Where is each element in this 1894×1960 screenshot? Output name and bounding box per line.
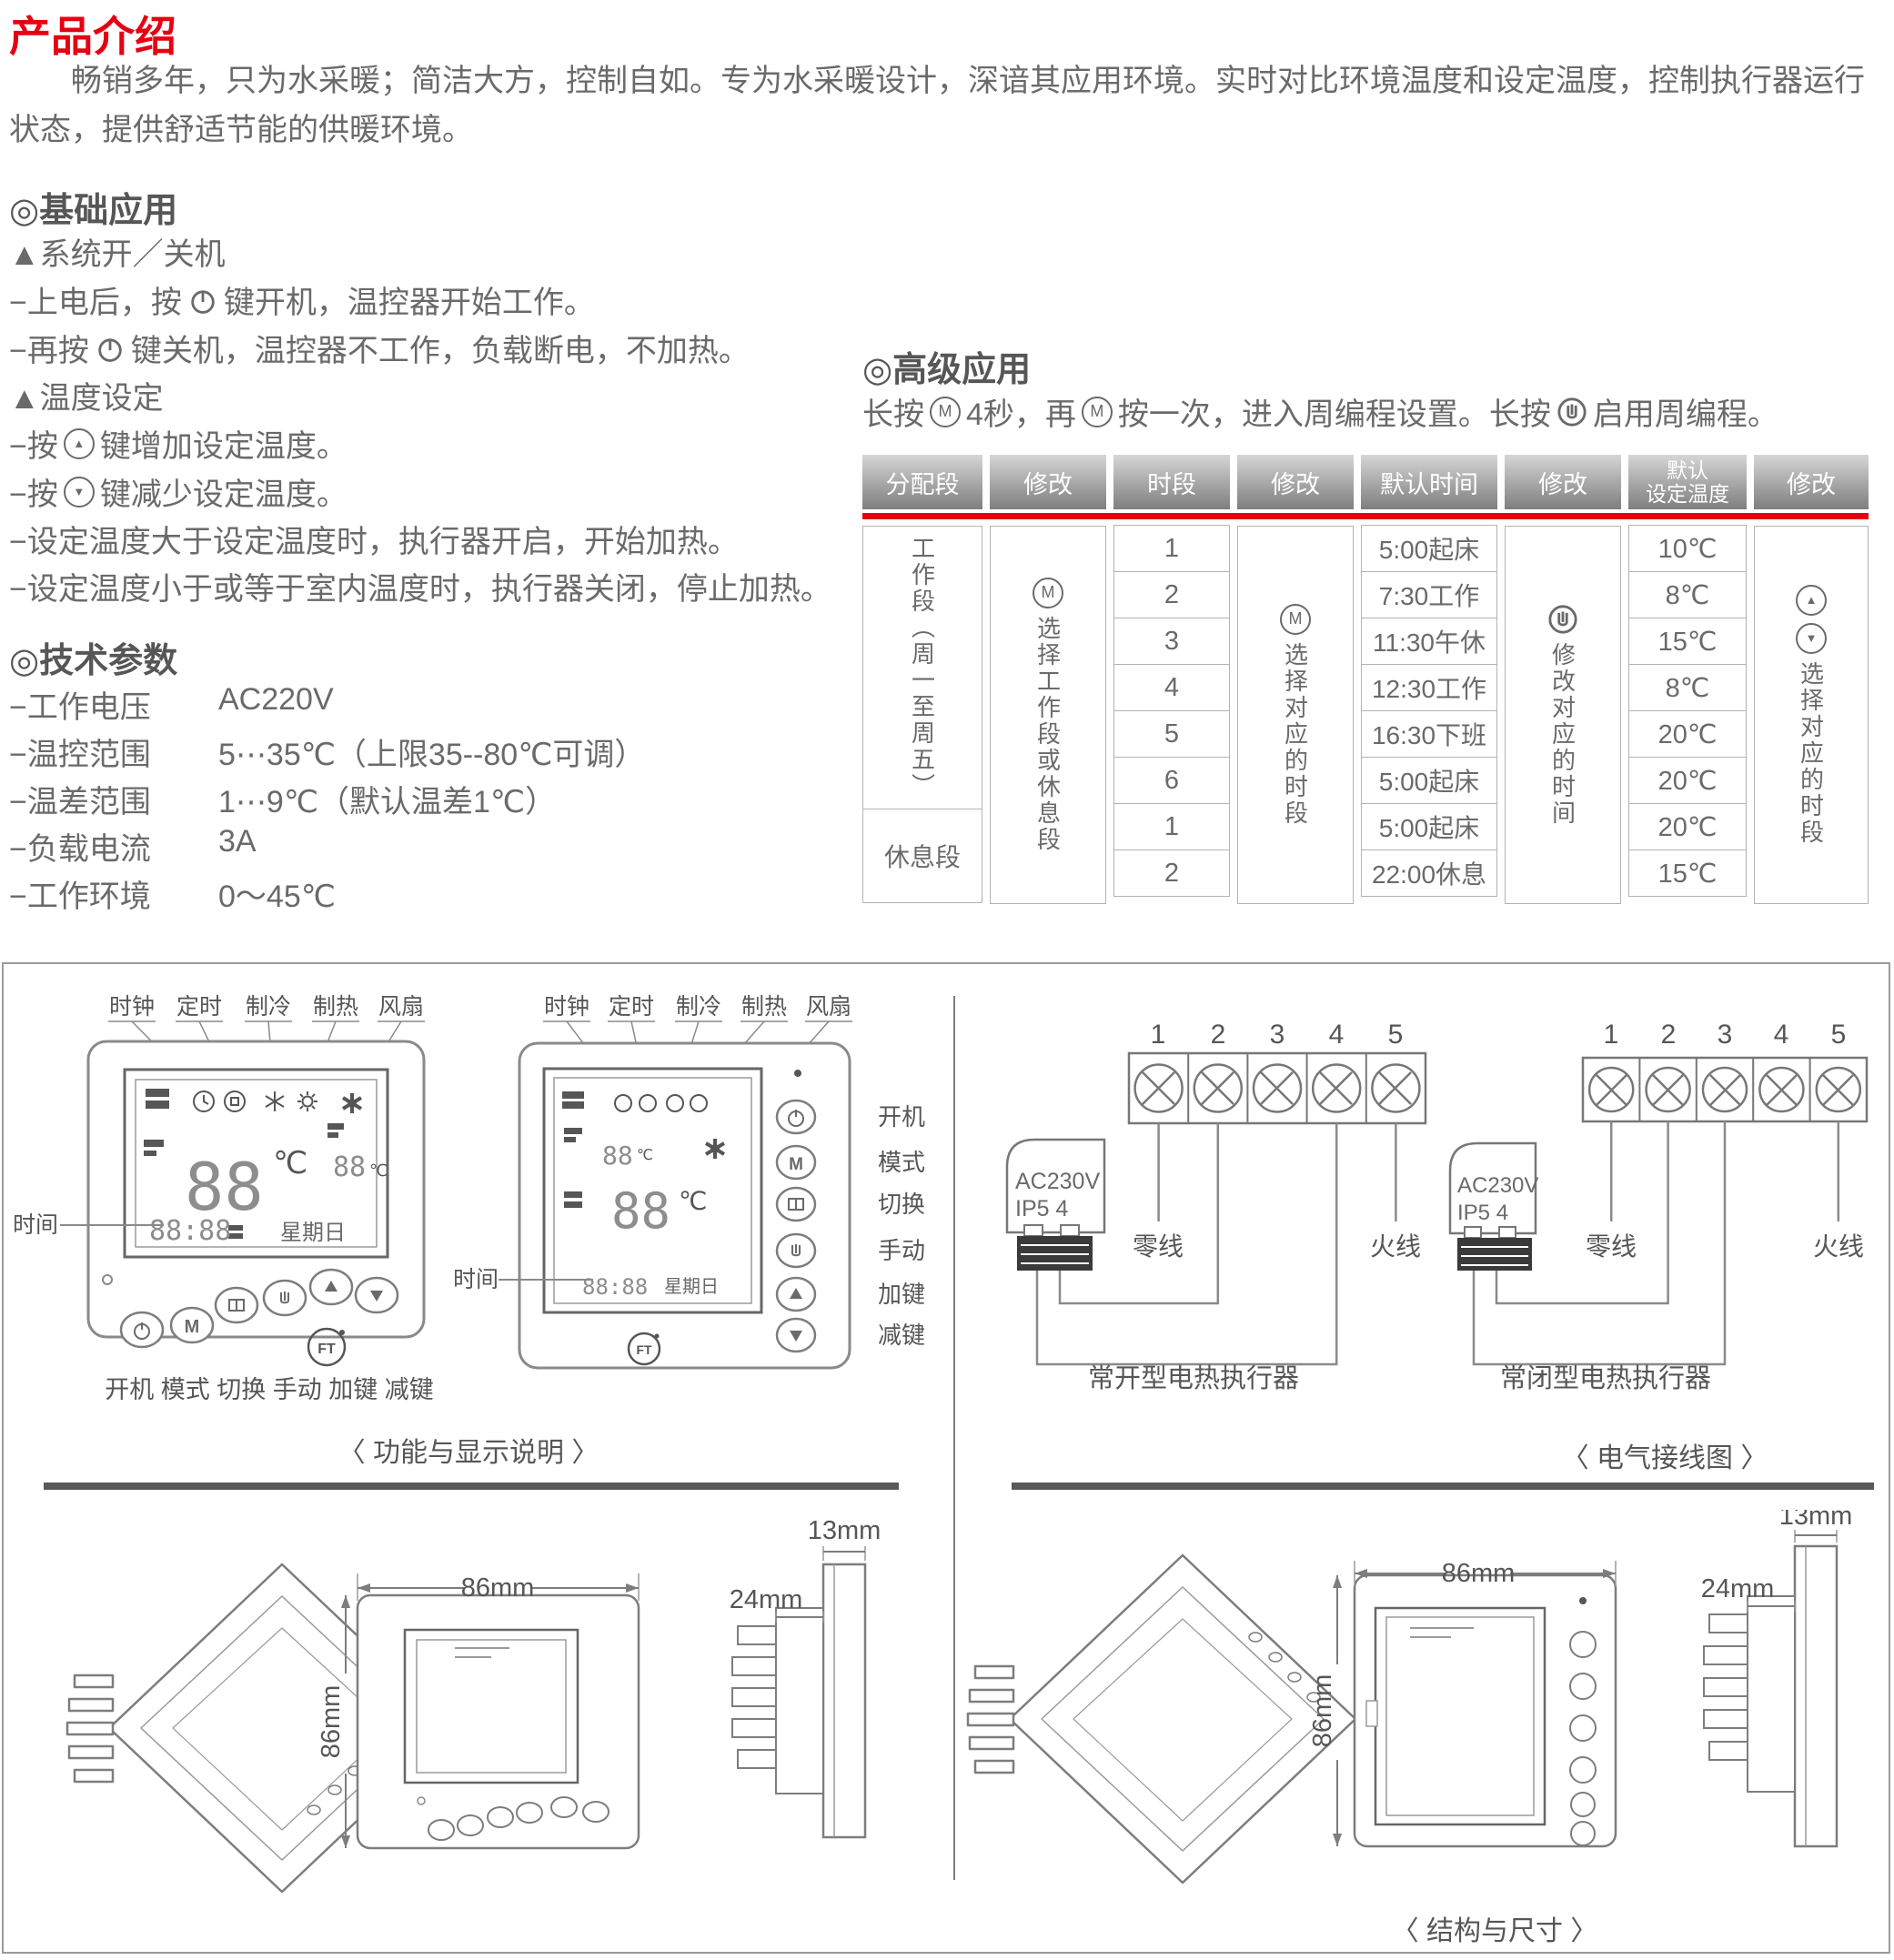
terminal-number: 3 <box>1718 1020 1733 1050</box>
height-label: 86mm <box>317 1685 346 1759</box>
m-key-icon: M <box>1033 578 1063 608</box>
perspective-view <box>968 1555 1355 1883</box>
display-label-cool: 制冷 <box>246 994 291 1020</box>
basic-line-3-post: 键增加设定温度。 <box>100 421 348 466</box>
advanced-intro: 长按 M 4秒，再 M 按一次，进入周编程设置。长按 启用周编程。 <box>862 389 1778 434</box>
down-key-icon <box>64 477 95 508</box>
side-label-manual: 手动 <box>878 1237 925 1264</box>
terminal-number: 5 <box>1388 1020 1404 1050</box>
period-cell: 6 <box>1113 757 1230 804</box>
th-modify-1: 修改 <box>990 455 1106 509</box>
led-indicator <box>794 1070 801 1077</box>
side-label-mode: 模式 <box>878 1149 925 1176</box>
display-label-timer: 定时 <box>176 994 222 1020</box>
front-view <box>1355 1575 1616 1846</box>
lcd-temp-unit: ℃ <box>273 1146 307 1181</box>
temp-cell: 10℃ <box>1628 525 1747 572</box>
time-cell: 22:00休息 <box>1361 849 1497 897</box>
manual-page: 产品介绍 畅销多年，只为水采暖；简洁大方，控制自如。专为水采暖设计，深谙其应用环… <box>0 0 1894 1960</box>
tech-label-0: −工作电压 <box>9 682 151 727</box>
thermostat-front-diagram-2: 时钟 定时 制冷 制热 风扇 88 ℃ 88 ℃ 88:88 星期日 <box>446 987 955 1423</box>
side-label-switch: 切换 <box>878 1191 925 1218</box>
m-button-label: M <box>789 1155 803 1174</box>
temp-cell: 15℃ <box>1628 849 1747 897</box>
cell-select-period: M 选择对应的时段 <box>1237 526 1354 904</box>
th-modify-2: 修改 <box>1237 455 1354 509</box>
tech-label-1: −温控范围 <box>9 729 151 774</box>
depth-label: 24mm <box>730 1585 803 1614</box>
ft-logo-text: FT <box>636 1342 652 1357</box>
display-label-heat: 制热 <box>313 994 358 1020</box>
lcd-week: 星期日 <box>280 1221 346 1245</box>
lcd-time-digits: 88:88 <box>149 1215 231 1247</box>
time-cell: 5:00起床 <box>1361 525 1497 572</box>
up-key-icon <box>64 428 95 459</box>
period-cell: 2 <box>1113 571 1230 618</box>
period-cell: 2 <box>1113 849 1230 897</box>
tech-value-1: 5⋯35℃（上限35--80℃可调） <box>218 729 645 774</box>
actuator-voltage: AC230V <box>1457 1173 1538 1198</box>
tech-label-4: −工作环境 <box>9 871 151 916</box>
panel-label: 13mm <box>808 1516 882 1545</box>
basic-sub-power: ▲系统开／关机 <box>9 229 226 274</box>
hand-key-icon <box>1547 604 1578 635</box>
ft-logo-dot <box>655 1334 660 1339</box>
period-cell: 1 <box>1113 525 1230 572</box>
power-icon <box>95 333 126 364</box>
lcd-temp-digits: 88 <box>611 1182 670 1240</box>
display-label-clock: 时钟 <box>109 994 155 1020</box>
live-label: 火线 <box>1813 1232 1864 1261</box>
basic-line-1: −上电后，按 键开机，温控器开始工作。 <box>9 277 595 322</box>
temp-cell: 15℃ <box>1628 618 1747 665</box>
lcd-set-digits: 88 <box>602 1141 633 1171</box>
dimensions-diagram-right: 86mm 86mm 13mm 24mm <box>955 1510 1883 1946</box>
caption-wiring: 〈 电气接线图 〉 <box>1562 1435 1768 1475</box>
intro-paragraph: 畅销多年，只为水采暖；简洁大方，控制自如。专为水采暖设计，深谙其应用环境。实时对… <box>9 56 1885 155</box>
cell-select-period-2: 选择对应的时段 <box>1754 526 1869 904</box>
basic-heading: ◎基础应用 <box>9 182 177 232</box>
basic-line-1-post: 键开机，温控器开始工作。 <box>224 277 595 322</box>
side-label-power: 开机 <box>878 1103 925 1131</box>
terminal-number: 2 <box>1661 1020 1677 1050</box>
tech-heading: ◎技术参数 <box>9 632 177 682</box>
basic-line-4: −按 键减少设定温度。 <box>9 469 348 514</box>
front-view <box>358 1595 639 1848</box>
lcd-time-digits: 88:88 <box>582 1274 648 1300</box>
terminal-number: 5 <box>1831 1020 1847 1050</box>
side-label-plus: 加键 <box>878 1281 925 1308</box>
actuator-ip: IP5 4 <box>1457 1201 1508 1225</box>
display-label-clock: 时钟 <box>544 994 589 1020</box>
th-default-temp: 默认设定温度 <box>1628 455 1747 509</box>
table-red-rule <box>862 513 1869 519</box>
basic-line-5: −设定温度大于设定温度时，执行器开启，开始加热。 <box>9 517 739 561</box>
time-cell: 16:30下班 <box>1361 710 1497 758</box>
terminal-number: 2 <box>1211 1020 1226 1050</box>
caption-normally-closed: 常闭型电热执行器 <box>1500 1363 1711 1393</box>
terminal-number: 1 <box>1604 1020 1619 1050</box>
caption-function-display: 〈 功能与显示说明 〉 <box>338 1430 599 1470</box>
program-table: 分配段 工作段（周一至周五） 休息段 修改 M 选择工作段或休息段 时段 1 2… <box>862 455 1869 904</box>
tech-value-2: 1⋯9℃（默认温差1℃） <box>218 777 556 821</box>
neutral-label: 零线 <box>1133 1232 1184 1261</box>
time-cell: 11:30午休 <box>1361 618 1497 665</box>
time-pointer-label: 时间 <box>13 1212 58 1238</box>
lcd-temp-unit: ℃ <box>679 1187 707 1215</box>
panel-dimension: 13mm <box>1779 1510 1853 1543</box>
lcd-set-unit: ℃ <box>369 1161 388 1180</box>
display-label-fan: 风扇 <box>806 994 851 1020</box>
temp-cells: 10℃ 8℃ 15℃ 8℃ 20℃ 20℃ 20℃ 15℃ <box>1628 526 1747 897</box>
right-section-divider <box>1012 1483 1874 1490</box>
period-cell: 5 <box>1113 710 1230 758</box>
side-label-minus: 减键 <box>878 1322 925 1349</box>
tech-value-3: 3A <box>218 824 257 859</box>
advanced-heading: ◎高级应用 <box>862 341 1031 391</box>
caption-normally-open: 常开型电热执行器 <box>1088 1363 1299 1393</box>
time-pointer-label: 时间 <box>453 1267 499 1292</box>
terminal-number: 1 <box>1151 1020 1166 1050</box>
panel-dimension: 13mm <box>808 1516 882 1561</box>
m-button-label: M <box>185 1317 200 1337</box>
temp-cell: 20℃ <box>1628 757 1747 804</box>
width-label: 86mm <box>461 1573 535 1603</box>
actuator-voltage: AC230V <box>1015 1169 1100 1194</box>
depth-dimension: 24mm <box>1701 1574 1795 1612</box>
basic-line-4-pre: −按 <box>9 469 58 514</box>
height-dimension: 86mm <box>1308 1575 1342 1846</box>
ft-logo-dot <box>339 1330 345 1335</box>
lcd-set-digits: 88 <box>333 1151 366 1183</box>
lcd-week: 星期日 <box>664 1277 719 1297</box>
display-label-fan: 风扇 <box>378 994 424 1020</box>
lcd-set-unit: ℃ <box>637 1148 653 1163</box>
depth-label: 24mm <box>1701 1574 1775 1603</box>
m-key-icon: M <box>1082 397 1113 427</box>
temp-cell: 20℃ <box>1628 803 1747 850</box>
panel-label: 13mm <box>1779 1510 1853 1531</box>
height-label: 86mm <box>1308 1674 1337 1748</box>
th-modify-3: 修改 <box>1505 455 1621 509</box>
temp-cell: 8℃ <box>1628 571 1747 618</box>
th-modify-4: 修改 <box>1754 455 1869 509</box>
advanced-intro-2: 4秒，再 <box>966 389 1076 434</box>
period-cell: 1 <box>1113 803 1230 850</box>
basic-sub-temp: ▲温度设定 <box>9 373 164 417</box>
live-label: 火线 <box>1370 1232 1421 1261</box>
cell-rest-segment: 休息段 <box>862 809 982 903</box>
power-icon <box>187 285 218 316</box>
wiring-diagram: 1 2 3 4 5 AC230V IP5 4 零线 火线 常开型电热执行器 <box>964 987 1883 1414</box>
display-label-cool: 制冷 <box>676 994 721 1020</box>
time-cell: 5:00起床 <box>1361 803 1497 850</box>
basic-line-3-pre: −按 <box>9 421 58 466</box>
page-title: 产品介绍 <box>9 4 176 64</box>
cell-work-segment: 工作段（周一至周五） <box>862 526 982 809</box>
m-key-icon: M <box>1280 604 1311 635</box>
left-section-divider <box>44 1483 899 1490</box>
period-cell: 4 <box>1113 664 1230 711</box>
period-cells: 1 2 3 4 5 6 1 2 <box>1113 526 1230 897</box>
time-cell: 12:30工作 <box>1361 664 1497 711</box>
neutral-label: 零线 <box>1586 1232 1637 1261</box>
down-key-icon <box>1796 623 1827 654</box>
up-key-icon <box>1796 585 1827 616</box>
m-key-icon: M <box>930 397 961 427</box>
basic-line-4-post: 键减少设定温度。 <box>100 469 348 514</box>
time-cell: 7:30工作 <box>1361 571 1497 618</box>
temp-cell: 20℃ <box>1628 710 1747 758</box>
basic-line-6: −设定温度小于或等于室内温度时，执行器关闭，停止加热。 <box>9 564 831 608</box>
th-period: 时段 <box>1113 455 1230 509</box>
th-default-time: 默认时间 <box>1361 455 1497 509</box>
terminal-number: 3 <box>1270 1020 1285 1050</box>
table-header-row: 分配段 工作段（周一至周五） 休息段 修改 M 选择工作段或休息段 时段 1 2… <box>862 455 1869 904</box>
actuator-ip: IP5 4 <box>1015 1196 1068 1221</box>
ft-logo-text: FT <box>317 1342 336 1357</box>
display-label-timer: 定时 <box>609 994 654 1020</box>
display-label-heat: 制热 <box>741 994 787 1020</box>
advanced-intro-4: 启用周编程。 <box>1593 389 1778 434</box>
basic-line-1-pre: −上电后，按 <box>9 277 182 322</box>
hand-key-icon <box>1557 397 1587 427</box>
button-labels-row: 开机 模式 切换 手动 加键 减键 <box>105 1376 434 1403</box>
basic-line-2-post: 键关机，温控器不工作，负载断电，不加热。 <box>131 326 750 370</box>
period-cell: 3 <box>1113 618 1230 665</box>
lcd-temp-digits: 88 <box>185 1149 264 1225</box>
time-cell: 5:00起床 <box>1361 757 1497 804</box>
wiring-normally-open: 1 2 3 4 5 AC230V IP5 4 零线 火线 常开型电热执行器 <box>1007 1020 1426 1393</box>
tech-value-4: 0～45℃ <box>218 871 336 916</box>
terminal-number: 4 <box>1329 1020 1345 1050</box>
advanced-intro-1: 长按 <box>862 389 924 434</box>
tech-label-3: −负载电流 <box>9 824 151 869</box>
basic-line-3: −按 键增加设定温度。 <box>9 421 348 466</box>
dimensions-diagram-left: 86mm 86mm 13mm 24mm <box>27 1510 937 1946</box>
basic-line-2-pre: −再按 <box>9 326 89 370</box>
caption-structure-dimensions: 〈 结构与尺寸 〉 <box>1392 1908 1598 1948</box>
temp-cell: 8℃ <box>1628 664 1747 711</box>
width-label: 86mm <box>1442 1559 1516 1588</box>
wiring-normally-closed: 1 2 3 4 5 AC230V IP5 4 零线 火线 常闭型电热执行器 <box>1450 1020 1867 1393</box>
cell-modify-time: 修改对应的时间 <box>1505 526 1621 904</box>
depth-dimension: 24mm <box>730 1585 823 1623</box>
tech-label-2: −温差范围 <box>9 777 151 821</box>
advanced-intro-3: 按一次，进入周编程设置。长按 <box>1118 389 1551 434</box>
th-segment: 分配段 <box>862 455 982 509</box>
tech-value-0: AC220V <box>218 682 334 718</box>
basic-line-2: −再按 键关机，温控器不工作，负载断电，不加热。 <box>9 326 750 370</box>
led-indicator <box>1579 1597 1587 1604</box>
terminal-number: 4 <box>1774 1020 1789 1050</box>
time-cells: 5:00起床 7:30工作 11:30午休 12:30工作 16:30下班 5:… <box>1361 526 1497 897</box>
cell-select-segment: M 选择工作段或休息段 <box>990 526 1106 904</box>
thermostat-front-diagram: 时钟 定时 制冷 制热 风扇 88 ℃ 88 ℃ 88 <box>7 987 480 1423</box>
